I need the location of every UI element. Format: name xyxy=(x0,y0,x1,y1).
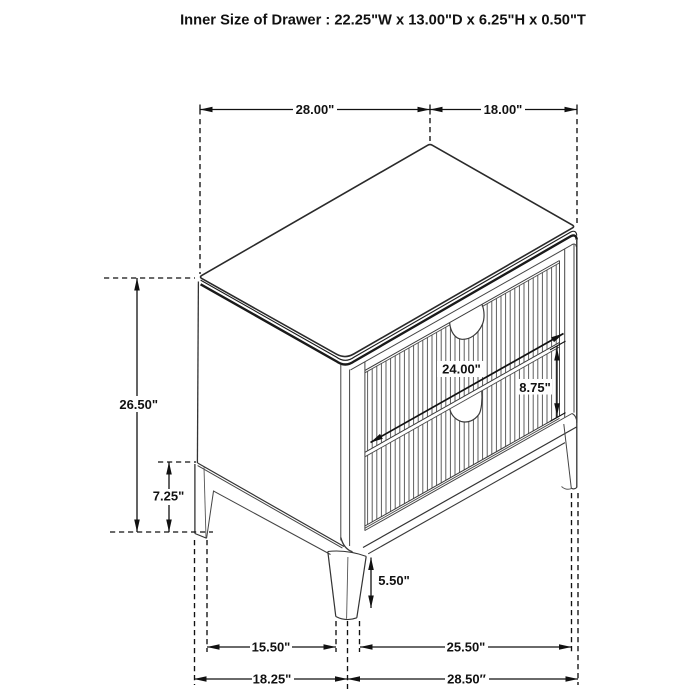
svg-text:5.50": 5.50" xyxy=(378,573,409,588)
svg-text:15.50": 15.50" xyxy=(252,639,291,654)
svg-text:24.00": 24.00" xyxy=(442,362,481,377)
svg-text:Inner Size of Drawer : 22.25"W: Inner Size of Drawer : 22.25"W x 13.00"D… xyxy=(180,13,586,29)
svg-text:26.50": 26.50" xyxy=(119,397,158,412)
svg-text:7.25": 7.25" xyxy=(153,489,184,504)
svg-text:28.00": 28.00" xyxy=(296,102,335,117)
svg-text:18.00": 18.00" xyxy=(484,102,523,117)
svg-text:8.75": 8.75" xyxy=(519,380,550,395)
svg-text:18.25": 18.25" xyxy=(253,671,292,686)
svg-text:25.50": 25.50" xyxy=(447,639,486,654)
svg-text:28.50″: 28.50″ xyxy=(447,671,486,686)
